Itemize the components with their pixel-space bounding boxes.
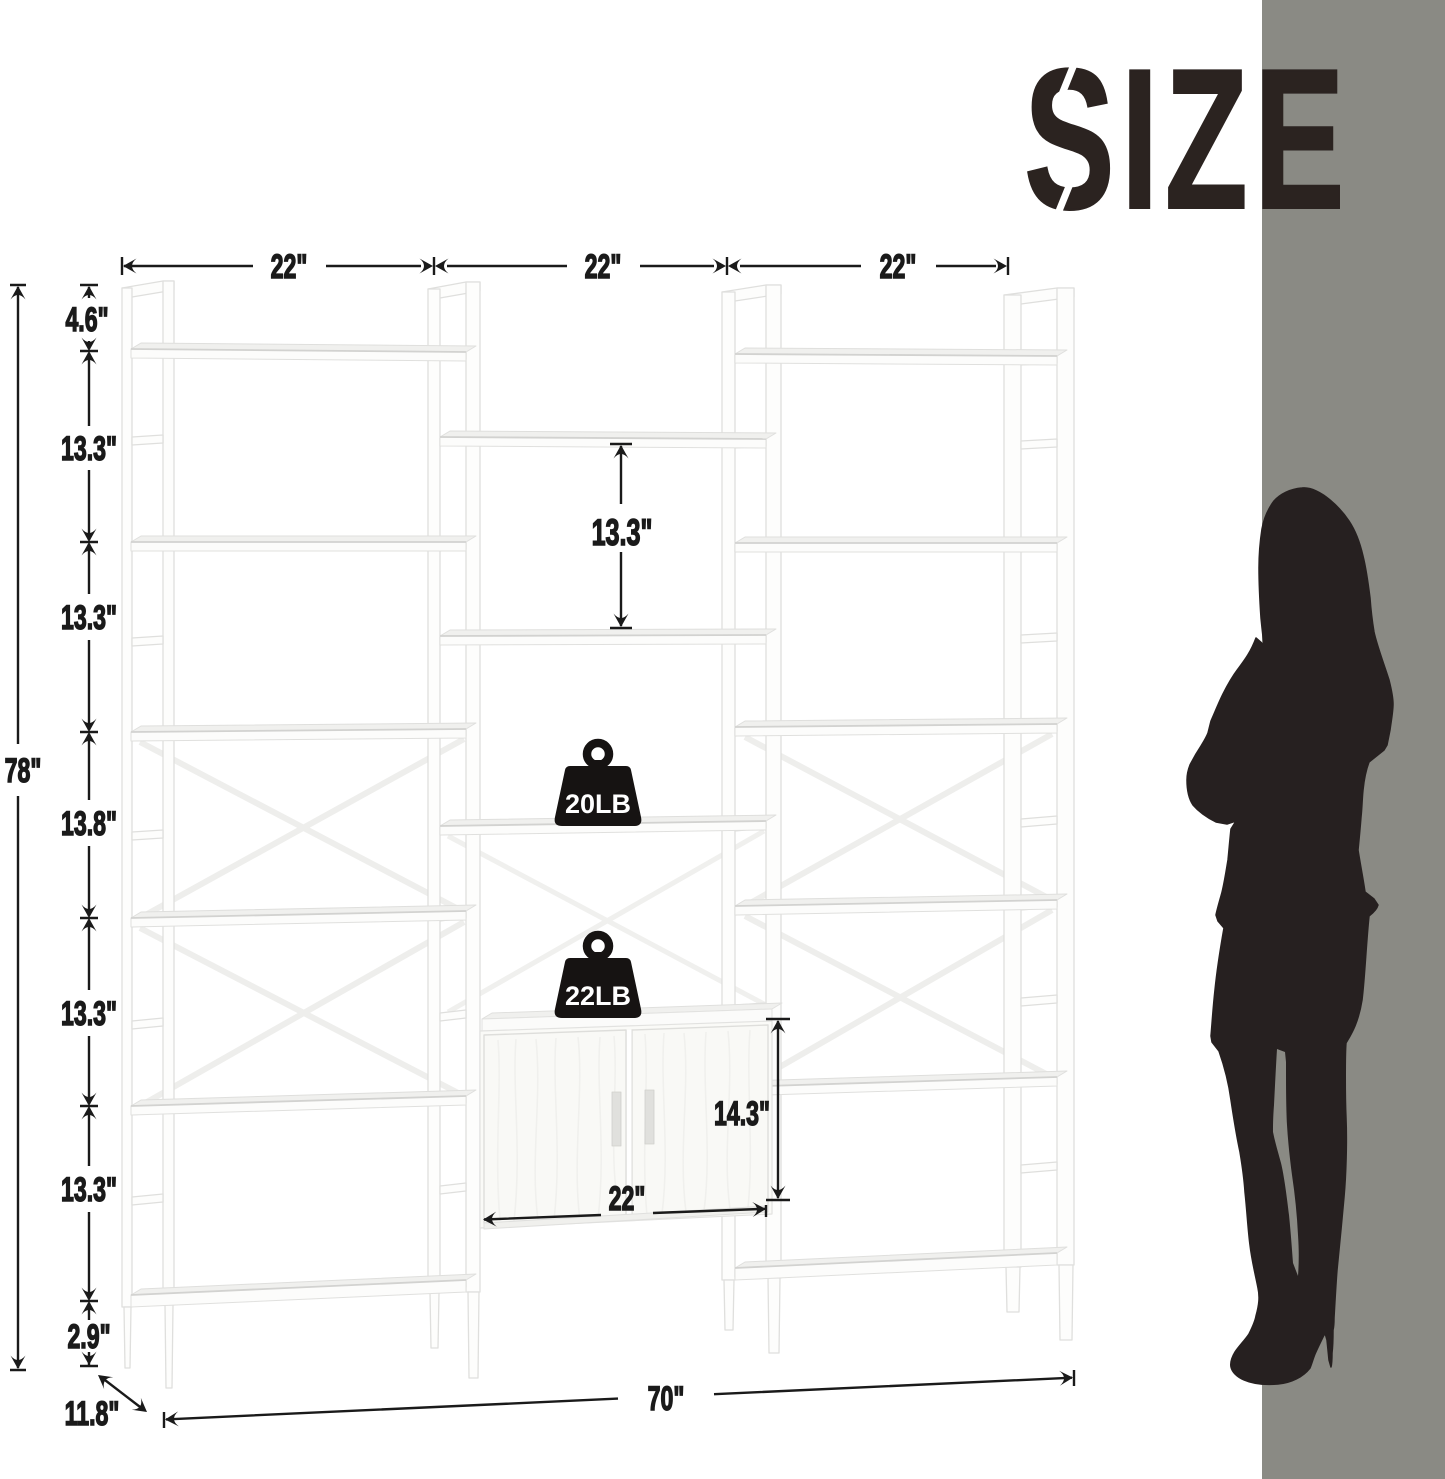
svg-text:SIZE: SIZE (1024, 28, 1351, 251)
svg-text:11.8": 11.8" (65, 1396, 120, 1433)
svg-text:22": 22" (585, 249, 622, 286)
svg-text:22": 22" (271, 249, 308, 286)
svg-text:13.8": 13.8" (61, 806, 117, 843)
svg-text:22LB: 22LB (565, 981, 631, 1011)
svg-text:78": 78" (5, 753, 42, 790)
svg-text:13.3": 13.3" (61, 600, 117, 637)
svg-text:22": 22" (609, 1181, 646, 1218)
svg-text:13.3": 13.3" (61, 996, 117, 1033)
svg-text:20LB: 20LB (565, 789, 631, 819)
svg-text:4.6": 4.6" (65, 302, 108, 339)
svg-text:2.9": 2.9" (67, 1319, 110, 1356)
svg-text:13.3": 13.3" (592, 511, 653, 553)
svg-text:70": 70" (648, 1381, 685, 1418)
svg-text:14.3": 14.3" (714, 1096, 770, 1133)
svg-text:13.3": 13.3" (61, 431, 117, 468)
svg-text:13.3": 13.3" (61, 1172, 117, 1209)
svg-text:22": 22" (880, 249, 917, 286)
